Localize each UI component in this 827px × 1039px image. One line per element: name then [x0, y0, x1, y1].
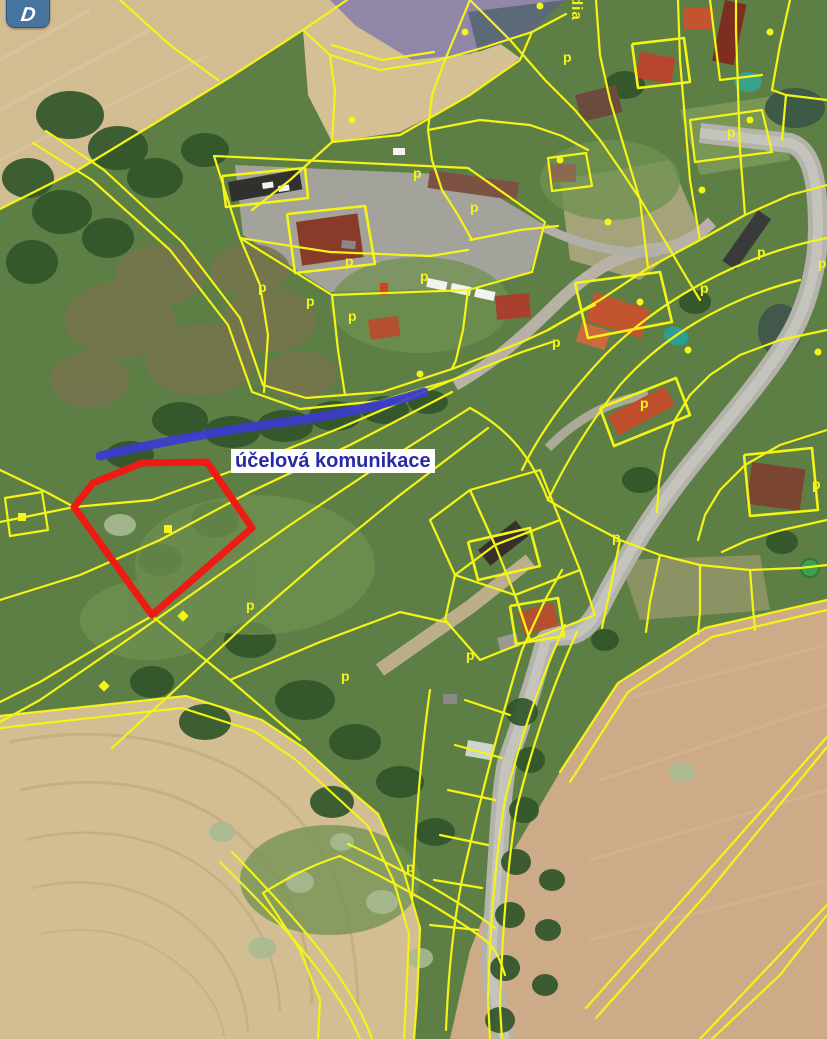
parcel-symbol: p — [818, 255, 827, 271]
rotated-place-label: dia — [568, 0, 585, 21]
parcel-symbol — [815, 349, 822, 356]
parcel-symbol: p — [413, 165, 422, 181]
parcel-symbol — [637, 299, 644, 306]
parcel-symbol: p — [700, 280, 709, 296]
parcel-symbol: p — [420, 268, 429, 284]
parcel-symbol — [164, 525, 172, 533]
parcel-symbol: p — [470, 199, 479, 215]
map-control-button-glyph: D — [19, 3, 37, 27]
map-control-button[interactable]: D — [6, 0, 50, 28]
parcel-symbol: p — [341, 668, 350, 684]
parcel-symbol: p — [727, 124, 736, 140]
parcel-symbol: p — [306, 293, 315, 309]
parcel-symbol — [417, 371, 424, 378]
parcel-symbol: p — [612, 529, 621, 545]
parcel-symbol — [18, 513, 26, 521]
parcel-symbol: p — [563, 49, 572, 65]
parcel-symbol: p — [757, 244, 766, 260]
parcel-symbol — [747, 117, 754, 124]
parcel-symbol: p — [466, 647, 475, 663]
parcel-symbol: p — [812, 476, 821, 492]
parcel-symbol — [557, 157, 564, 164]
parcel-symbol — [349, 117, 356, 124]
parcel-symbol — [767, 29, 774, 36]
parcel-symbol: p — [345, 253, 354, 269]
parcel-symbol: p — [406, 859, 415, 875]
parcel-symbol: p — [246, 597, 255, 613]
map-viewport[interactable]: pppppppppppppppppppp účelová komunikace … — [0, 0, 827, 1039]
parcel-symbol — [537, 3, 544, 10]
parcel-symbol: p — [552, 334, 561, 350]
route-label: účelová komunikace — [231, 449, 435, 473]
parcel-symbol: p — [258, 279, 267, 295]
parcel-symbol: p — [348, 308, 357, 324]
map-canvas[interactable]: pppppppppppppppppppp — [0, 0, 827, 1039]
parcel-symbol: p — [640, 395, 649, 411]
parcel-symbol — [699, 187, 706, 194]
parcel-symbol — [605, 219, 612, 226]
parcel-symbol — [685, 347, 692, 354]
parcel-symbol — [462, 29, 469, 36]
